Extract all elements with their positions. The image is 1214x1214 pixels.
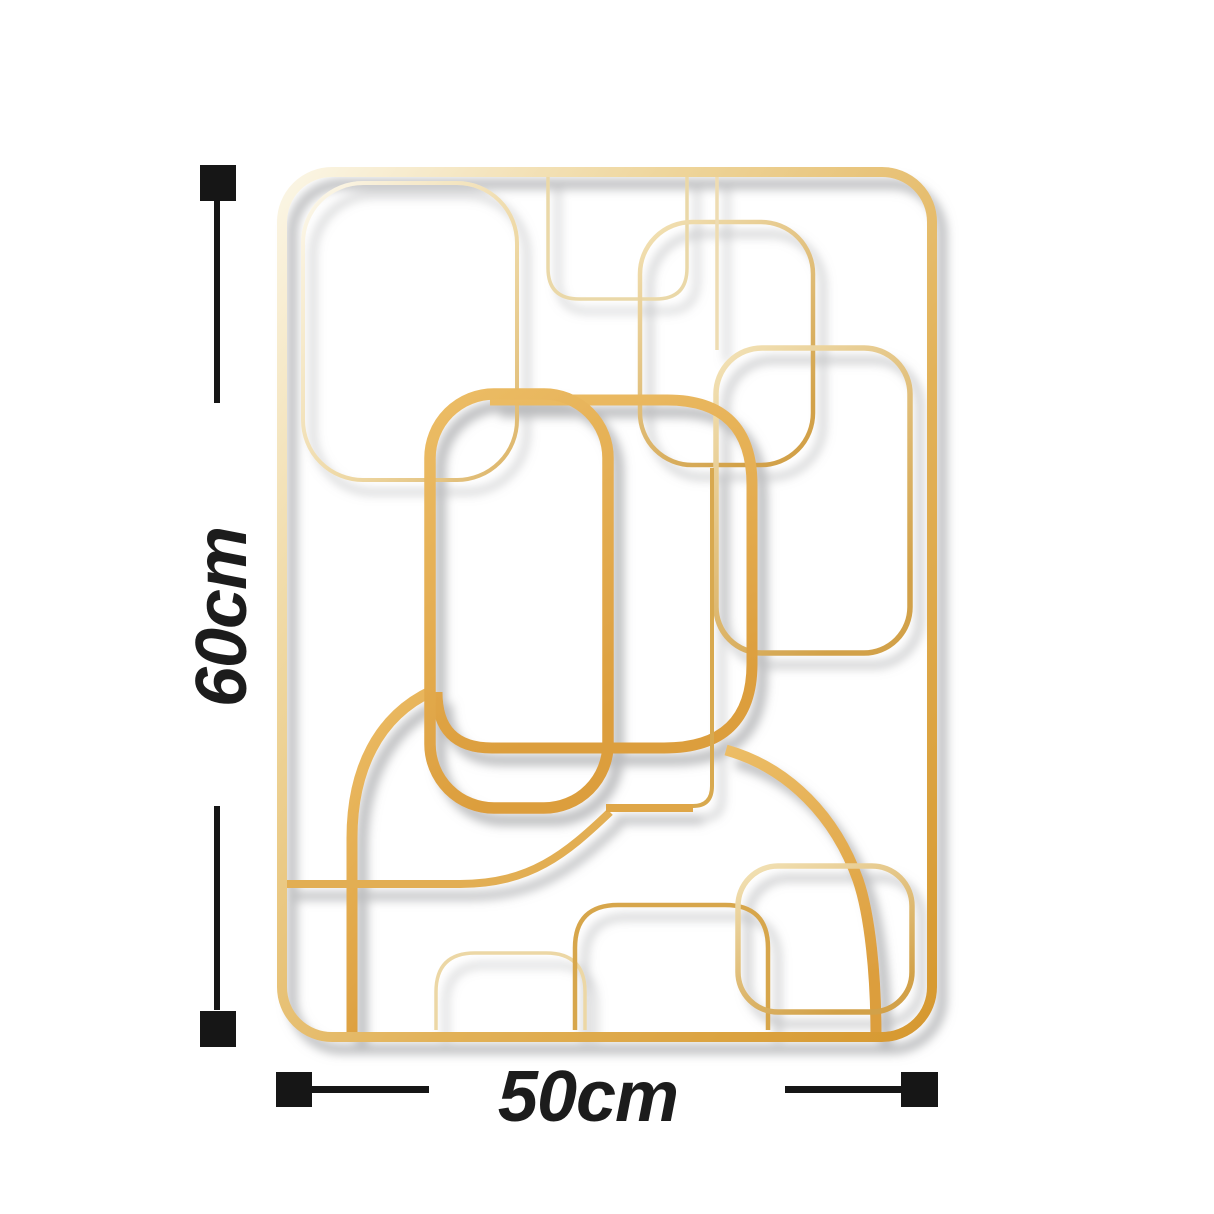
art-arch-right-branch xyxy=(726,750,876,1036)
art-thin-square-top-left xyxy=(303,183,517,480)
width-dimension-label: 50cm xyxy=(498,1056,678,1138)
art-rect-upper-right xyxy=(640,222,813,465)
width-dimension-right-line xyxy=(785,1086,901,1093)
art-small-rect-top-middle xyxy=(548,176,687,299)
height-dimension-lower-line xyxy=(214,806,220,1010)
height-dimension-upper-line xyxy=(214,200,220,403)
art-small-rect-bottom-left xyxy=(436,953,585,1030)
art-rect-bottom-right xyxy=(738,866,912,1012)
product-dimension-image: 60cm 50cm xyxy=(0,0,1214,1214)
width-dimension-right-square xyxy=(901,1072,938,1107)
height-dimension-bottom-square xyxy=(200,1011,236,1047)
height-dimension-top-square xyxy=(200,165,236,201)
height-dimension-label: 60cm xyxy=(181,527,263,707)
width-dimension-left-line xyxy=(312,1086,429,1093)
width-dimension-left-square xyxy=(276,1072,312,1107)
art-thin-riser-line xyxy=(693,468,712,806)
art-arch-left-leg xyxy=(352,691,432,1036)
art-thick-step-shape xyxy=(437,400,752,748)
art-crossbar-lower xyxy=(286,812,610,884)
